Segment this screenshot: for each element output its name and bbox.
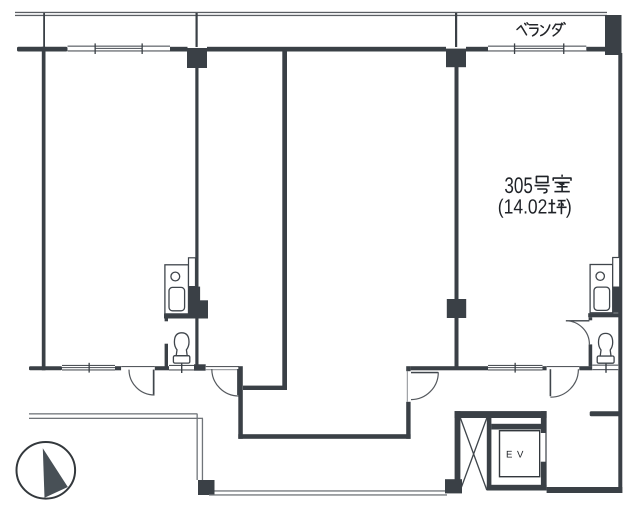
- svg-text:EV: EV: [506, 450, 528, 461]
- svg-text:305: 305: [504, 173, 533, 198]
- svg-text:(14.02: (14.02: [498, 196, 548, 219]
- svg-text:): ): [566, 196, 572, 219]
